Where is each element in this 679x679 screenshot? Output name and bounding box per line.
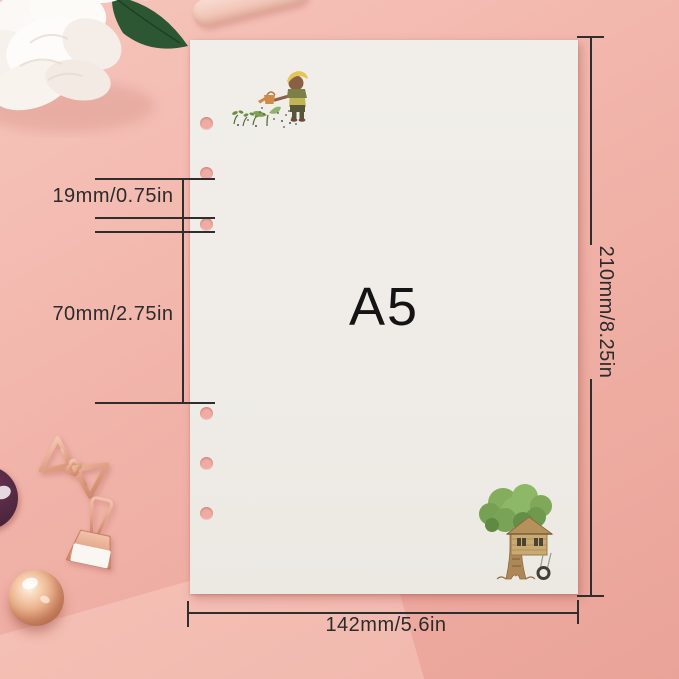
treehouse-illustration [477, 483, 563, 583]
punch-hole-3 [200, 218, 213, 231]
dim-tick-width-left [187, 601, 189, 627]
product-photo-stage: A5 [0, 0, 679, 679]
dim-tick-width-right [577, 600, 579, 624]
dim-line-hole-top [95, 178, 215, 180]
dim-line-hole-mid-b [95, 231, 215, 233]
dim-line-hole-mid-a [95, 217, 215, 219]
punch-hole-4 [200, 407, 213, 420]
dim-line-left-vertical [182, 178, 184, 404]
punch-hole-5 [200, 457, 213, 470]
punch-hole-6 [200, 507, 213, 520]
child-watering-illustration [226, 68, 326, 132]
hole-spacing-label: 19mm/0.75in [38, 185, 188, 207]
height-label: 210mm/8.25in [595, 246, 617, 379]
paper-size-label: A5 [190, 276, 578, 338]
width-label: 142mm/5.6in [286, 614, 486, 636]
hole-group-gap-label: 70mm/2.75in [38, 303, 188, 325]
dim-line-hole-bottom [95, 402, 215, 404]
dim-cap-bottom [577, 595, 604, 597]
dim-line-height-upper [590, 37, 592, 245]
dim-line-height-lower [590, 379, 592, 597]
peony-flower [0, 0, 230, 138]
binder-clip [66, 496, 130, 584]
